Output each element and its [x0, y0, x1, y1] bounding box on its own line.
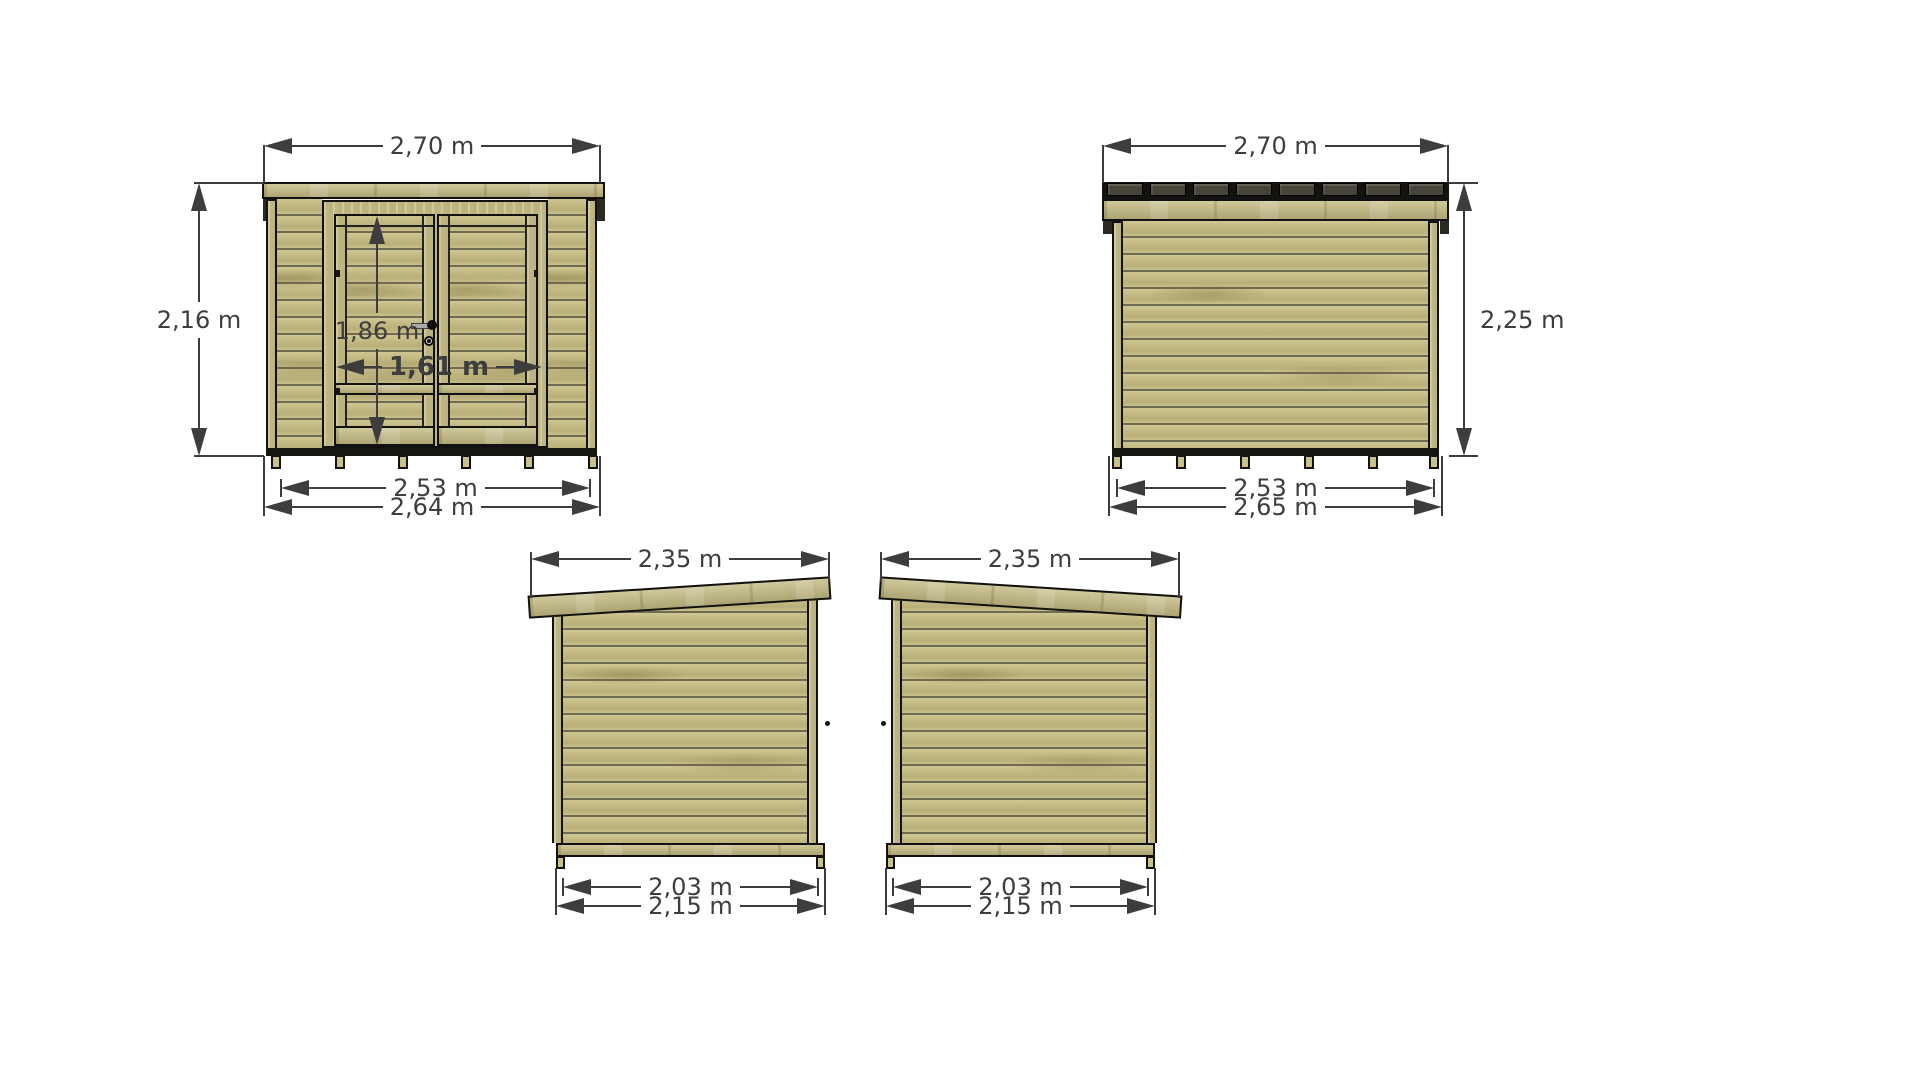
door-hinge-icon	[336, 388, 340, 395]
dim-label: 2,65 m	[1226, 495, 1324, 519]
arrow-right-icon	[562, 480, 590, 496]
arrow-left-icon	[1117, 480, 1145, 496]
door-hinge-icon	[336, 270, 340, 277]
side-right-floor-beam	[886, 843, 1155, 857]
arrow-right-icon	[790, 879, 818, 895]
back-foot	[1176, 456, 1186, 469]
dim-label: 2,70 m	[383, 134, 481, 158]
side-right-corner-post-front	[891, 596, 902, 843]
front-foot	[524, 456, 534, 469]
door-leaf-right-bottom-rail	[439, 426, 536, 444]
front-foot	[588, 456, 598, 469]
shed-elevation-drawing: 2,70 m 2,16 m 1,86 m 1,61 m 2,53 m	[0, 0, 1920, 1080]
side-left-wall-siding	[552, 596, 818, 843]
side-left-corner-post-front	[552, 596, 563, 843]
arrow-left-icon	[556, 898, 584, 914]
roof-batten	[1322, 183, 1358, 196]
front-foot	[271, 456, 281, 469]
back-wall-siding	[1123, 221, 1428, 448]
back-foot	[1368, 456, 1378, 469]
front-wall-siding-right	[548, 199, 586, 448]
dim-door-width: 1,61 m	[336, 357, 542, 377]
door-leaf-right	[437, 214, 538, 446]
back-eave-shadow-left	[1103, 221, 1112, 234]
arrow-right-icon	[514, 359, 542, 375]
back-foot	[1304, 456, 1314, 469]
front-wall-siding-left	[277, 199, 322, 448]
roof-batten	[1193, 183, 1229, 196]
dim-side-left-width-outer: 2,15 m	[556, 896, 825, 916]
front-foot	[335, 456, 345, 469]
arrow-left-icon	[1103, 138, 1131, 154]
arrow-up-icon	[1456, 183, 1472, 211]
back-corner-post-left	[1112, 221, 1123, 455]
roof-batten	[1236, 183, 1272, 196]
roof-batten	[1408, 183, 1444, 196]
dim-label: 2,35 m	[631, 547, 729, 571]
dim-label: 2,15 m	[641, 894, 739, 918]
dim-side-right-width-top: 2,35 m	[881, 549, 1179, 569]
back-foot	[1240, 456, 1250, 469]
arrow-left-icon	[336, 359, 364, 375]
arrow-left-icon	[531, 551, 559, 567]
arrow-right-icon	[1414, 499, 1442, 515]
arrow-left-icon	[281, 480, 309, 496]
arrow-right-icon	[797, 898, 825, 914]
arrow-right-icon	[801, 551, 829, 567]
roof-batten	[1279, 183, 1315, 196]
back-corner-post-right	[1428, 221, 1439, 455]
front-corner-post-left	[266, 199, 277, 455]
arrow-right-icon	[572, 138, 600, 154]
dim-back-width-outer: 2,65 m	[1109, 497, 1442, 517]
front-corner-post-right	[586, 199, 597, 455]
door-keyhole-icon	[424, 336, 434, 346]
dim-side-right-width-outer: 2,15 m	[886, 896, 1155, 916]
dim-label: 2,16 m	[157, 302, 241, 338]
arrow-left-icon	[893, 879, 921, 895]
dim-label: 2,70 m	[1226, 134, 1324, 158]
door-knob-icon	[427, 320, 437, 330]
dim-back-width-top: 2,70 m	[1103, 136, 1448, 156]
door-hinge-icon	[534, 388, 538, 395]
arrow-right-icon	[1120, 879, 1148, 895]
dim-label: 1,61 m	[382, 354, 496, 380]
side-right-wall-siding	[891, 596, 1157, 843]
dim-label: 1,86 m	[335, 313, 419, 349]
door-hinge-pin-icon	[881, 721, 886, 726]
arrow-down-icon	[1456, 428, 1472, 456]
arrow-left-icon	[881, 551, 909, 567]
back-floor-beam	[1112, 448, 1439, 456]
dim-label: 2,64 m	[383, 495, 481, 519]
roof-batten	[1365, 183, 1401, 196]
back-eave-shadow-right	[1440, 221, 1449, 234]
side-right-corner-post-rear	[1146, 596, 1157, 843]
arrow-up-icon	[369, 216, 385, 244]
side-right-foot	[886, 857, 895, 869]
front-floor-beam	[266, 448, 597, 456]
back-roof-felt	[1102, 182, 1449, 199]
arrow-right-icon	[1127, 898, 1155, 914]
front-roof-fascia	[262, 182, 605, 199]
arrow-down-icon	[191, 428, 207, 456]
roof-batten	[1150, 183, 1186, 196]
dim-door-height: 1,86 m	[367, 216, 387, 445]
arrow-right-icon	[1420, 138, 1448, 154]
arrow-down-icon	[369, 417, 385, 445]
dim-label: 2,25 m	[1480, 308, 1564, 332]
side-left-corner-post-rear	[807, 596, 818, 843]
door-leaf-right-stile-inner	[439, 216, 450, 444]
arrow-right-icon	[572, 499, 600, 515]
arrow-up-icon	[191, 183, 207, 211]
dim-front-width-outer: 2,64 m	[264, 497, 600, 517]
dim-label: 2,15 m	[971, 894, 1069, 918]
door-leaf-left-stile-inner	[422, 216, 433, 444]
arrow-left-icon	[264, 499, 292, 515]
arrow-left-icon	[563, 879, 591, 895]
dim-front-width-top: 2,70 m	[264, 136, 600, 156]
arrow-right-icon	[1406, 480, 1434, 496]
arrow-left-icon	[264, 138, 292, 154]
dim-back-height: 2,25 m	[1454, 183, 1474, 456]
front-foot	[461, 456, 471, 469]
dim-label: 2,35 m	[981, 547, 1079, 571]
back-foot	[1429, 456, 1439, 469]
arrow-left-icon	[1109, 499, 1137, 515]
door-leaf-right-stile-outer	[525, 216, 536, 444]
back-foot	[1112, 456, 1122, 469]
roof-batten	[1107, 183, 1143, 196]
dim-front-height: 2,16 m	[189, 183, 209, 456]
arrow-right-icon	[1151, 551, 1179, 567]
door-hinge-icon	[534, 270, 538, 277]
dim-side-left-width-top: 2,35 m	[531, 549, 829, 569]
front-foot	[398, 456, 408, 469]
door-leaf-right-mid-rail	[439, 383, 536, 395]
back-roof-fascia	[1102, 199, 1449, 221]
door-leaf-right-top-rail	[439, 225, 536, 227]
side-left-foot	[556, 857, 565, 869]
door-hinge-pin-icon	[825, 721, 830, 726]
arrow-left-icon	[886, 898, 914, 914]
side-left-floor-beam	[556, 843, 825, 857]
